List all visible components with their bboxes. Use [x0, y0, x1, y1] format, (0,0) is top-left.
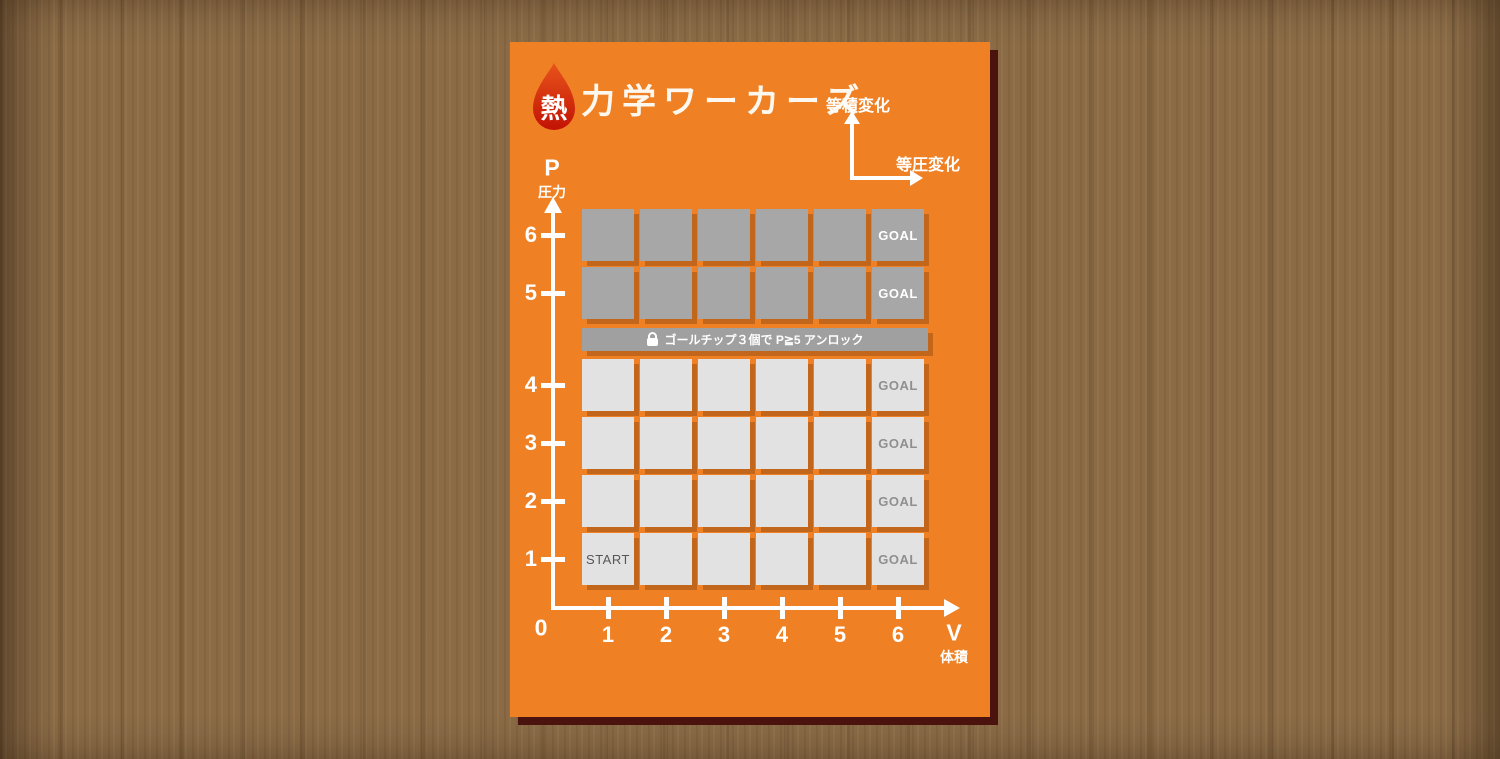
page-title: 力学ワーカーズ	[581, 83, 866, 121]
p-tick-4	[541, 383, 565, 388]
goal-cell-label: GOAL	[878, 228, 918, 243]
cell-p1-v5[interactable]	[814, 533, 866, 585]
lock-banner: ゴールチップ３個で P≧5 アンロック	[582, 328, 928, 351]
cell-p2-v2[interactable]	[640, 475, 692, 527]
v-tick-label-4: 4	[768, 622, 796, 648]
p-axis-arrow-icon	[544, 197, 562, 213]
cell-p1-v3[interactable]	[698, 533, 750, 585]
cell-p1-v2[interactable]	[640, 533, 692, 585]
cell-p6-v3[interactable]	[698, 209, 750, 261]
p-tick-5	[541, 291, 565, 296]
cell-p2-v3[interactable]	[698, 475, 750, 527]
legend-horizontal-line	[850, 176, 912, 180]
v-tick-3	[722, 597, 727, 619]
cell-p6-v5[interactable]	[814, 209, 866, 261]
p-tick-label-1: 1	[510, 546, 537, 572]
game-board-card: 熱 力学ワーカーズ 等積変化 等圧変化 P 圧力 654321 0 V 体積 1…	[510, 42, 990, 717]
v-tick-label-2: 2	[652, 622, 680, 648]
p-axis-symbol: P	[544, 155, 559, 182]
origin-label: 0	[535, 615, 548, 642]
p-tick-6	[541, 233, 565, 238]
cell-p4-v6[interactable]: GOAL	[872, 359, 924, 411]
v-axis-name: 体積	[940, 647, 968, 667]
cell-p4-v2[interactable]	[640, 359, 692, 411]
cell-p5-v3[interactable]	[698, 267, 750, 319]
v-tick-5	[838, 597, 843, 619]
v-axis-line	[553, 606, 946, 610]
goal-cell-label: GOAL	[878, 378, 918, 393]
wood-background: 熱 力学ワーカーズ 等積変化 等圧変化 P 圧力 654321 0 V 体積 1…	[0, 0, 1500, 759]
cell-p3-v2[interactable]	[640, 417, 692, 469]
cell-p5-v1[interactable]	[582, 267, 634, 319]
lock-banner-text: ゴールチップ３個で P≧5 アンロック	[665, 331, 864, 348]
cell-p6-v2[interactable]	[640, 209, 692, 261]
p-tick-label-5: 5	[510, 280, 537, 306]
cell-p3-v6[interactable]: GOAL	[872, 417, 924, 469]
v-tick-1	[606, 597, 611, 619]
v-tick-4	[780, 597, 785, 619]
cell-p2-v4[interactable]	[756, 475, 808, 527]
goal-cell-label: GOAL	[878, 286, 918, 301]
p-tick-label-3: 3	[510, 430, 537, 456]
isobaric-change-label: 等圧変化	[896, 151, 960, 175]
v-axis-symbol: V	[946, 620, 961, 647]
cell-p5-v4[interactable]	[756, 267, 808, 319]
drop-kanji: 熱	[541, 94, 568, 124]
cell-p2-v1[interactable]	[582, 475, 634, 527]
legend-vertical-line	[850, 122, 854, 180]
cell-p3-v5[interactable]	[814, 417, 866, 469]
p-tick-3	[541, 441, 565, 446]
cell-p1-v4[interactable]	[756, 533, 808, 585]
cell-p1-v1[interactable]: START	[582, 533, 634, 585]
cell-p3-v1[interactable]	[582, 417, 634, 469]
goal-cell-label: GOAL	[878, 494, 918, 509]
lock-icon	[647, 338, 658, 346]
goal-cell-label: GOAL	[878, 552, 918, 567]
p-axis-line	[551, 212, 555, 610]
v-tick-2	[664, 597, 669, 619]
cell-p3-v4[interactable]	[756, 417, 808, 469]
cell-p4-v4[interactable]	[756, 359, 808, 411]
cell-p4-v5[interactable]	[814, 359, 866, 411]
p-tick-2	[541, 499, 565, 504]
p-tick-label-6: 6	[510, 222, 537, 248]
cell-p5-v2[interactable]	[640, 267, 692, 319]
goal-cell-label: GOAL	[878, 436, 918, 451]
cell-p2-v6[interactable]: GOAL	[872, 475, 924, 527]
v-tick-label-5: 5	[826, 622, 854, 648]
cell-p6-v4[interactable]	[756, 209, 808, 261]
cell-p1-v6[interactable]: GOAL	[872, 533, 924, 585]
cell-p6-v6[interactable]: GOAL	[872, 209, 924, 261]
cell-p2-v5[interactable]	[814, 475, 866, 527]
v-tick-label-1: 1	[594, 622, 622, 648]
p-tick-label-2: 2	[510, 488, 537, 514]
cell-p6-v1[interactable]	[582, 209, 634, 261]
p-tick-1	[541, 557, 565, 562]
cell-p4-v1[interactable]	[582, 359, 634, 411]
start-cell-label: START	[586, 552, 630, 567]
v-tick-label-3: 3	[710, 622, 738, 648]
v-tick-label-6: 6	[884, 622, 912, 648]
cell-p4-v3[interactable]	[698, 359, 750, 411]
v-axis-arrow-icon	[944, 599, 960, 617]
p-tick-label-4: 4	[510, 372, 537, 398]
cell-p5-v5[interactable]	[814, 267, 866, 319]
v-tick-6	[896, 597, 901, 619]
cell-p5-v6[interactable]: GOAL	[872, 267, 924, 319]
heat-drop-icon: 熱	[531, 62, 577, 132]
cell-p3-v3[interactable]	[698, 417, 750, 469]
